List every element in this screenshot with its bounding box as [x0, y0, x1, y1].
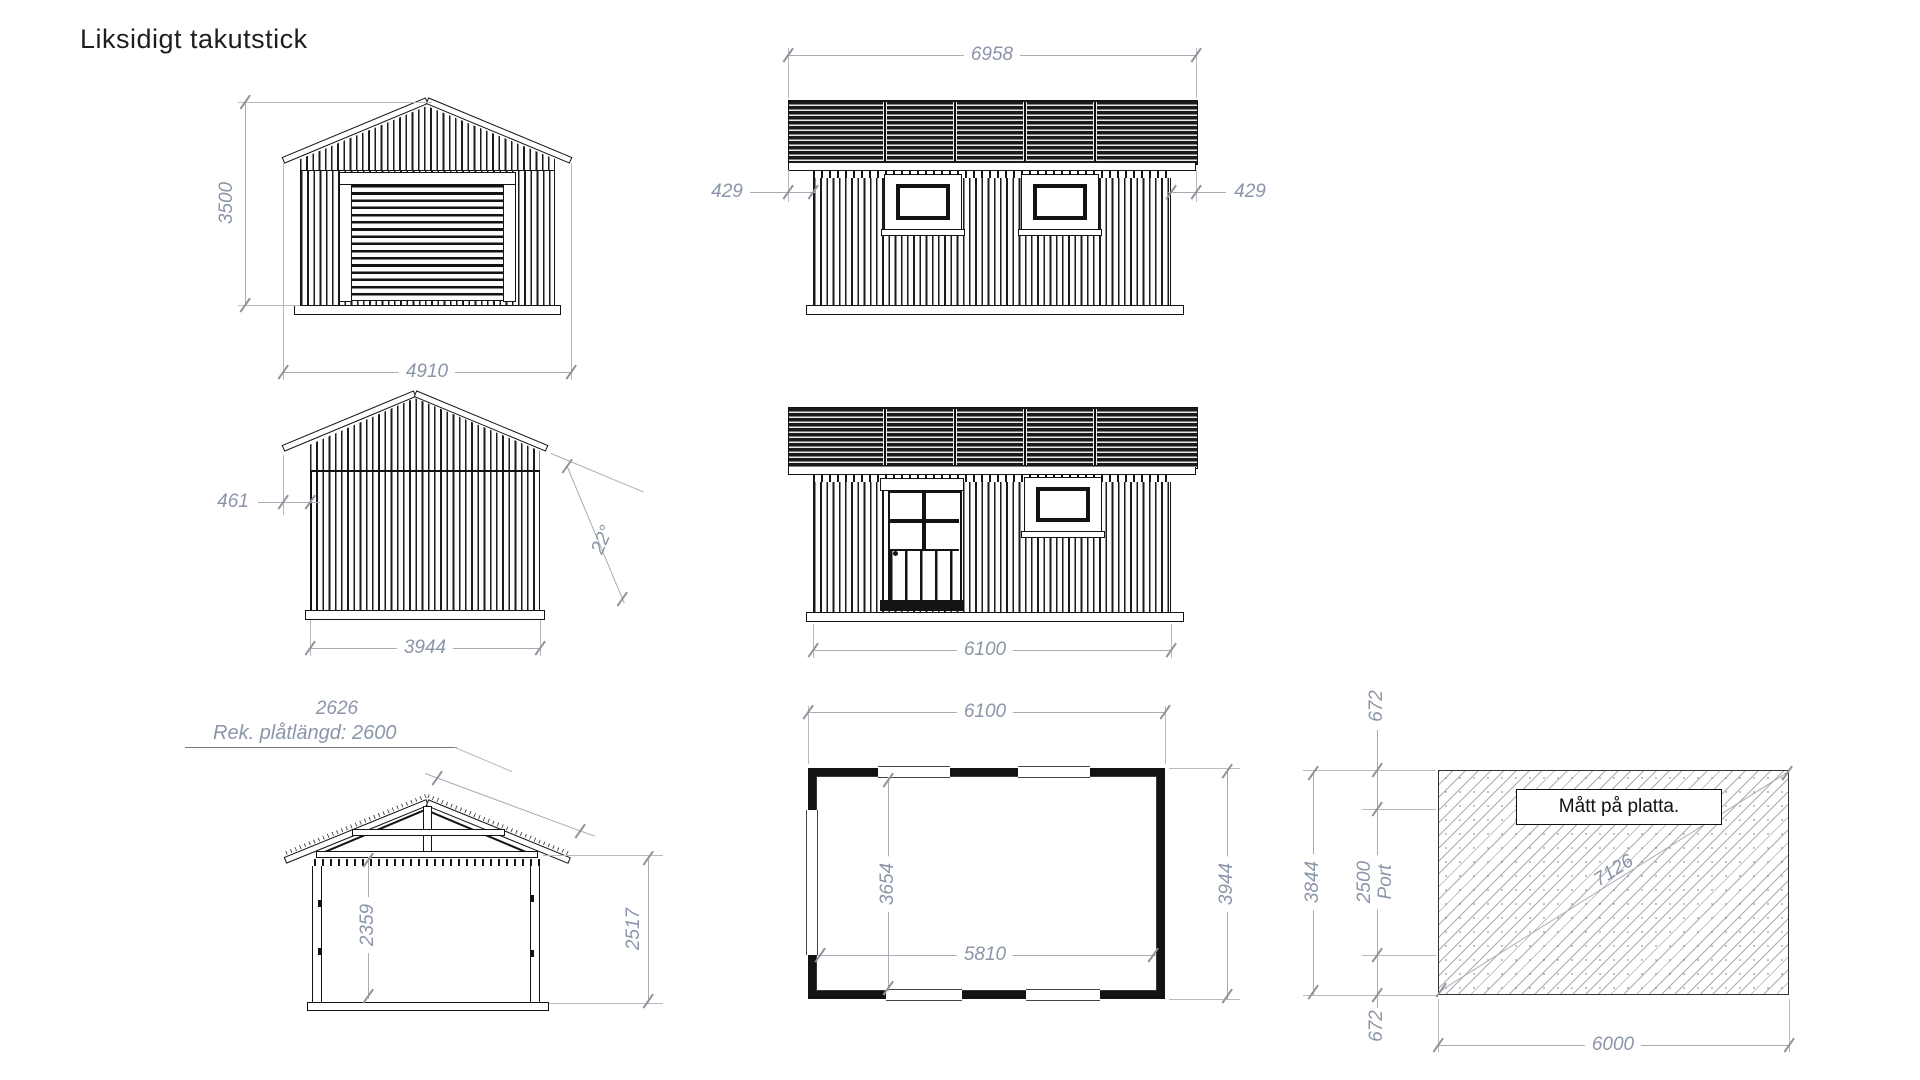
dentil-strip [813, 171, 1171, 178]
dimension-line [1377, 955, 1378, 1008]
extension-line [1303, 770, 1436, 771]
dimension-tick [617, 592, 628, 607]
dim-slab-port-group: 2500 Port [1354, 855, 1396, 909]
dimension-line [551, 453, 644, 493]
wall-fastener-mark [530, 950, 534, 957]
extension-line [1196, 170, 1197, 202]
dim-roof-length: 6958 [964, 44, 1020, 66]
extension-line [1362, 955, 1436, 956]
roof-panel-joint [883, 409, 887, 465]
extension-line [1169, 999, 1240, 1000]
roof-hatch-right [427, 794, 569, 855]
roof-fascia-strip [788, 163, 1196, 171]
extension-line [283, 163, 284, 380]
dimension-line [750, 192, 816, 193]
door-handle [893, 551, 898, 556]
roof-sheet-band [788, 100, 1198, 165]
roof-panel-joint [953, 102, 957, 161]
plan-window-opening [1026, 989, 1100, 1001]
dim-front-roof-width: 4910 [399, 361, 455, 383]
garage-door [352, 185, 503, 301]
garage-door-header-trim [339, 172, 516, 185]
door-header-trim [880, 478, 964, 491]
collar-tie [352, 829, 505, 836]
dim-slab-port-width: 2500 [1354, 861, 1375, 903]
rear-wall-siding [813, 178, 1171, 305]
dim-roof-slope: 2626 [316, 698, 358, 720]
roof-panel-joint [1023, 102, 1027, 161]
roof-fascia-strip [788, 467, 1196, 475]
wall-top-line [310, 470, 540, 472]
extension-line [808, 706, 809, 764]
entry-door [888, 491, 962, 603]
roof-panel-joint [883, 102, 887, 161]
roof-panel-joint [1093, 102, 1097, 161]
roof-panel-joint [1093, 409, 1097, 465]
page-title: Liksidigt takutstick [80, 24, 308, 55]
wall-fastener-mark [318, 948, 322, 955]
dim-slab-top-offset: 672 [1366, 690, 1388, 722]
dim-slab-bottom-offset: 672 [1366, 1010, 1388, 1042]
roof-panel-joint [953, 409, 957, 465]
door-threshold [880, 600, 964, 611]
dim-interior-height: 2359 [357, 897, 379, 953]
plan-door-opening [886, 989, 962, 1001]
front-skirt [294, 305, 561, 315]
dentil-strip [813, 475, 1171, 482]
window-sill [1018, 229, 1102, 236]
door-muntin-horizontal [890, 519, 959, 523]
wall-edge-right [539, 470, 541, 610]
dim-overhang-left: 429 [711, 181, 743, 203]
dim-gable-width: 3944 [397, 637, 453, 659]
window-frame [1033, 184, 1087, 220]
extension-line [1362, 809, 1436, 810]
plan-wall-bottom [808, 991, 1165, 999]
gable-skirt [305, 610, 545, 620]
extension-line [310, 620, 311, 656]
wall-edge-left [310, 470, 312, 610]
extension-line [813, 624, 814, 658]
extension-line [238, 102, 432, 103]
sheet-note: Rek. plåtlängd: 2600 [213, 722, 396, 745]
dim-slab-length: 6000 [1585, 1034, 1641, 1056]
front-side-wall-siding [813, 482, 1171, 612]
extension-line [238, 305, 300, 306]
drawing-canvas: Liksidigt takutstick 3500 4910 6958 429 … [0, 0, 1920, 1080]
section-skirt [307, 1002, 549, 1011]
roof-hatch-left [285, 794, 427, 855]
dim-slab-total-width: 3844 [1302, 854, 1324, 910]
dim-plan-outer-width: 3944 [1216, 856, 1238, 912]
window-sill [881, 229, 965, 236]
leader-line [455, 747, 513, 772]
window-frame [896, 184, 950, 220]
dim-wall-length: 6100 [957, 639, 1013, 661]
window-sill [1021, 531, 1105, 538]
extension-line [283, 455, 284, 515]
garage-door-right-trim [503, 184, 516, 302]
extension-line [571, 163, 572, 380]
roof-sheet-band [788, 407, 1198, 469]
dim-plan-outer-length: 6100 [957, 701, 1013, 723]
dim-gable-overhang: 461 [217, 491, 249, 513]
dim-plan-inner-width: 3654 [877, 856, 899, 912]
door-planks [890, 549, 959, 600]
sheet-note-underline: Rek. plåtlängd: 2600 [185, 722, 457, 748]
rear-skirt [806, 305, 1184, 315]
section-wall-right [530, 866, 540, 1002]
dim-wall-height: 2517 [623, 908, 645, 950]
window-frame [1036, 487, 1090, 522]
dentil-strip [314, 859, 540, 866]
slab-label: Mått på platta. [1559, 796, 1679, 818]
wall-fastener-mark [318, 900, 322, 907]
extension-line [788, 170, 789, 202]
wall-fastener-mark [530, 895, 534, 902]
garage-door-left-trim [339, 184, 352, 302]
dim-slab-port-label: Port [1375, 861, 1396, 903]
dimension-line [245, 102, 246, 306]
extension-line [1165, 706, 1166, 764]
dim-overhang-right: 429 [1234, 181, 1266, 203]
extension-line [540, 620, 541, 656]
dim-plan-inner-length: 5810 [957, 944, 1013, 966]
dim-front-height: 3500 [216, 182, 238, 224]
plan-wall-top [808, 768, 1165, 776]
bottom-chord [316, 851, 538, 858]
extension-line [1303, 995, 1436, 996]
extension-line [1171, 624, 1172, 658]
front-side-skirt [806, 612, 1184, 622]
section-wall-left [312, 866, 322, 1002]
plan-window-opening [1018, 766, 1090, 778]
extension-line [543, 855, 663, 856]
plan-wall-right [1157, 768, 1165, 999]
roof-panel-joint [1023, 409, 1027, 465]
plan-port-opening [806, 810, 818, 955]
dimension-line [648, 855, 649, 1003]
slab-label-box: Mått på platta. [1516, 789, 1722, 825]
